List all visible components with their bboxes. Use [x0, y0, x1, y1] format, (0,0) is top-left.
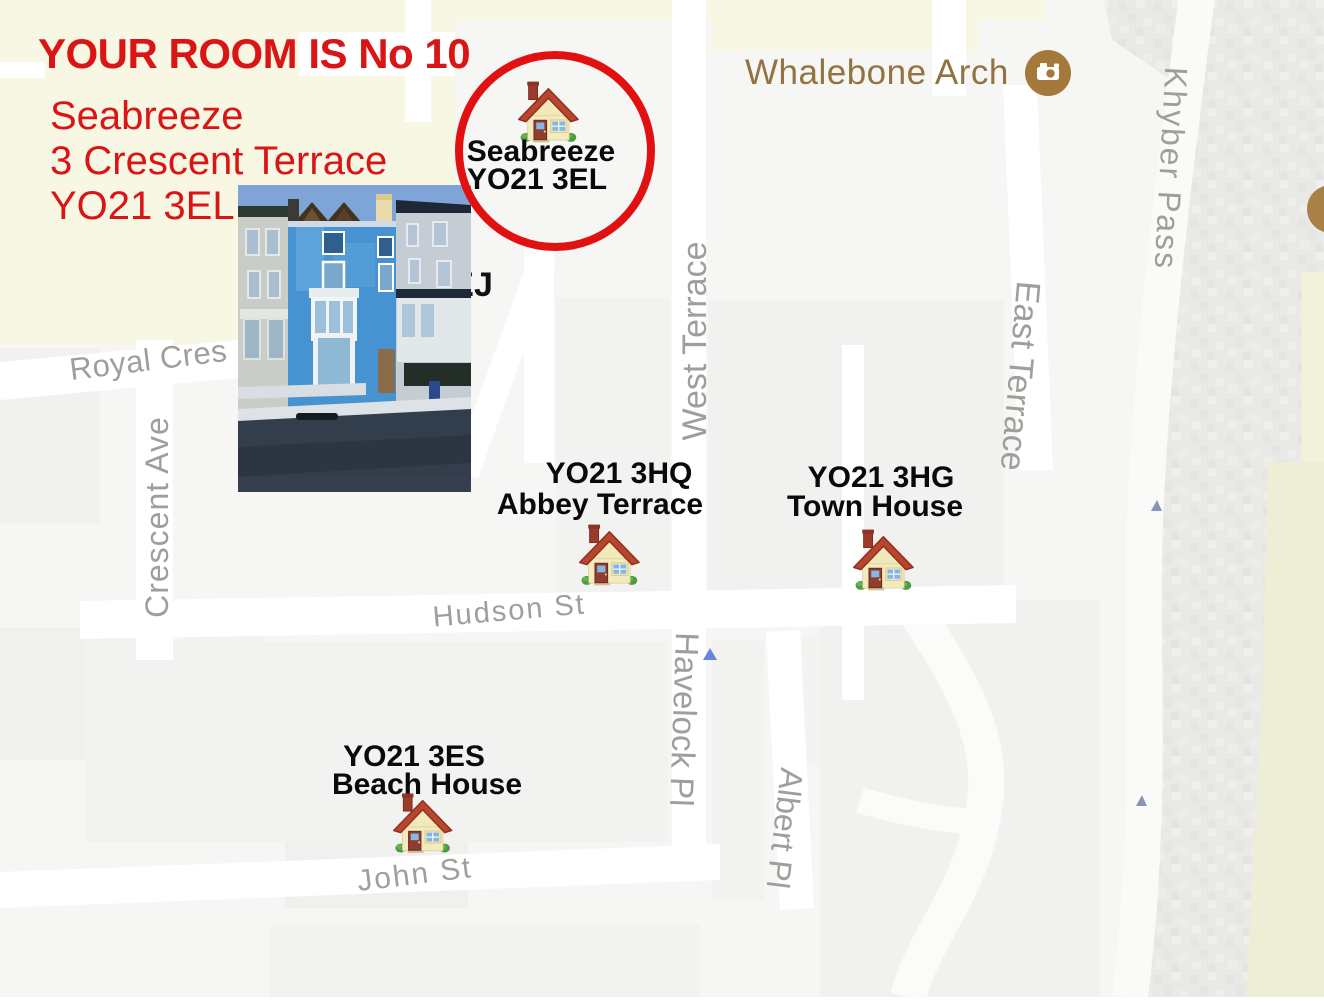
svg-text:YO21 3EL: YO21 3EL [467, 163, 607, 196]
svg-text:3 Crescent Terrace: 3 Crescent Terrace [50, 139, 387, 183]
svg-text:YO21 3EL: YO21 3EL [50, 184, 235, 228]
svg-text:Seabreeze: Seabreeze [50, 94, 243, 138]
svg-text:Havelock Pl: Havelock Pl [663, 632, 706, 807]
svg-text:West Terrace: West Terrace [676, 241, 714, 440]
svg-text:Abbey Terrace: Abbey Terrace [497, 488, 703, 521]
svg-text:Whalebone Arch: Whalebone Arch [745, 53, 1009, 92]
svg-text:YOUR ROOM IS No 10: YOUR ROOM IS No 10 [38, 30, 470, 77]
svg-text:Town House: Town House [787, 490, 963, 523]
svg-text:YO21 3HQ: YO21 3HQ [546, 457, 693, 490]
svg-text:Beach House: Beach House [332, 768, 522, 801]
svg-text:Crescent Ave: Crescent Ave [139, 416, 175, 618]
